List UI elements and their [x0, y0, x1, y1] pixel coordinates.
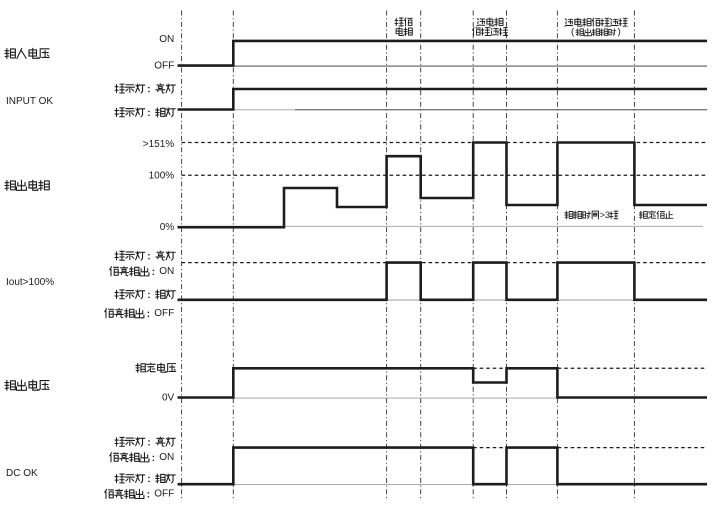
svg-text:Iout>100%: Iout>100% [6, 277, 54, 288]
svg-text:ON: ON [159, 452, 174, 463]
svg-text:OFF: OFF [154, 489, 174, 500]
svg-text:>151%: >151% [143, 139, 175, 150]
svg-text:OFF: OFF [154, 61, 174, 72]
svg-text:DC OK: DC OK [6, 468, 38, 479]
svg-text:ON: ON [159, 266, 174, 277]
svg-text:INPUT OK: INPUT OK [6, 96, 53, 107]
svg-text:OFF: OFF [154, 308, 174, 319]
svg-text:>3: >3 [600, 210, 610, 220]
svg-text:0%: 0% [160, 222, 175, 233]
svg-text:100%: 100% [149, 170, 175, 181]
svg-text:0V: 0V [162, 393, 175, 404]
svg-text:ON: ON [159, 34, 174, 45]
